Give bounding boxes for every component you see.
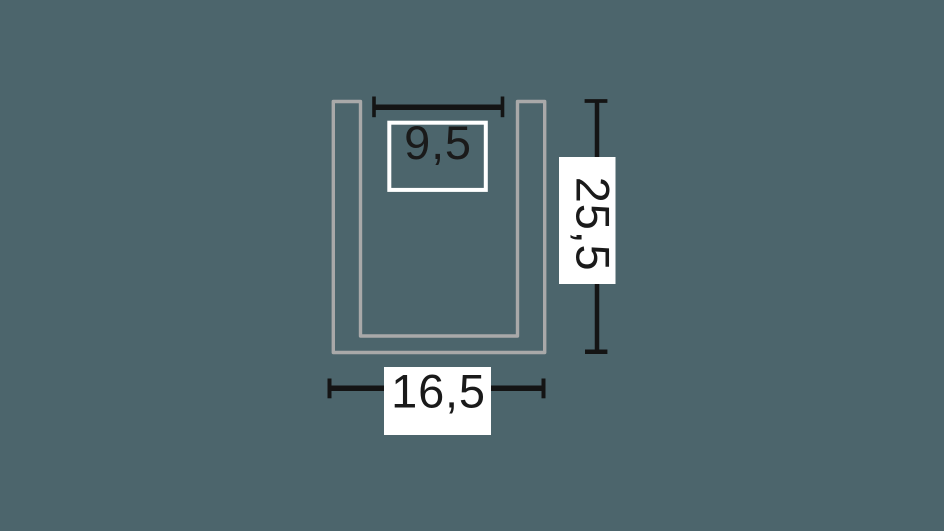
svg-text:16,5: 16,5 — [391, 365, 486, 418]
svg-text:9,5: 9,5 — [404, 116, 472, 169]
svg-text:25,5: 25,5 — [567, 177, 620, 272]
